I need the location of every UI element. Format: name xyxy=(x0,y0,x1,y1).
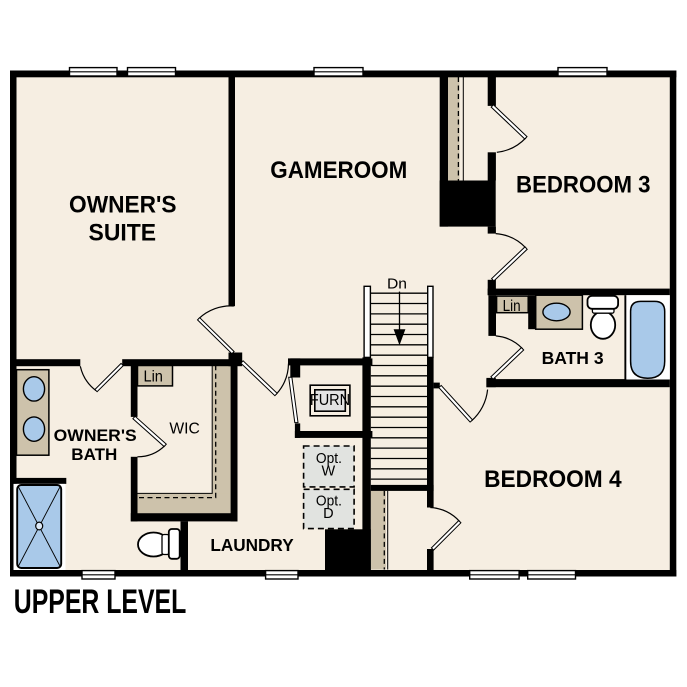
svg-text:LAUNDRY: LAUNDRY xyxy=(210,535,294,555)
svg-text:WIC: WIC xyxy=(169,421,200,438)
svg-text:BATH 3: BATH 3 xyxy=(542,348,604,368)
svg-text:Lin: Lin xyxy=(143,369,163,386)
svg-text:Lin: Lin xyxy=(503,298,521,315)
svg-text:W: W xyxy=(322,464,336,480)
svg-text:OWNER'S: OWNER'S xyxy=(54,426,137,445)
svg-text:Dn: Dn xyxy=(387,276,407,293)
svg-text:SUITE: SUITE xyxy=(89,220,157,247)
svg-text:OWNER'S: OWNER'S xyxy=(69,191,177,218)
svg-text:D: D xyxy=(323,506,334,522)
svg-text:FURN: FURN xyxy=(310,392,350,409)
svg-text:BEDROOM 3: BEDROOM 3 xyxy=(516,172,651,199)
svg-text:UPPER LEVEL: UPPER LEVEL xyxy=(14,583,187,621)
svg-text:BEDROOM 4: BEDROOM 4 xyxy=(484,466,622,493)
svg-text:BATH: BATH xyxy=(71,445,117,464)
svg-text:GAMEROOM: GAMEROOM xyxy=(270,157,407,184)
